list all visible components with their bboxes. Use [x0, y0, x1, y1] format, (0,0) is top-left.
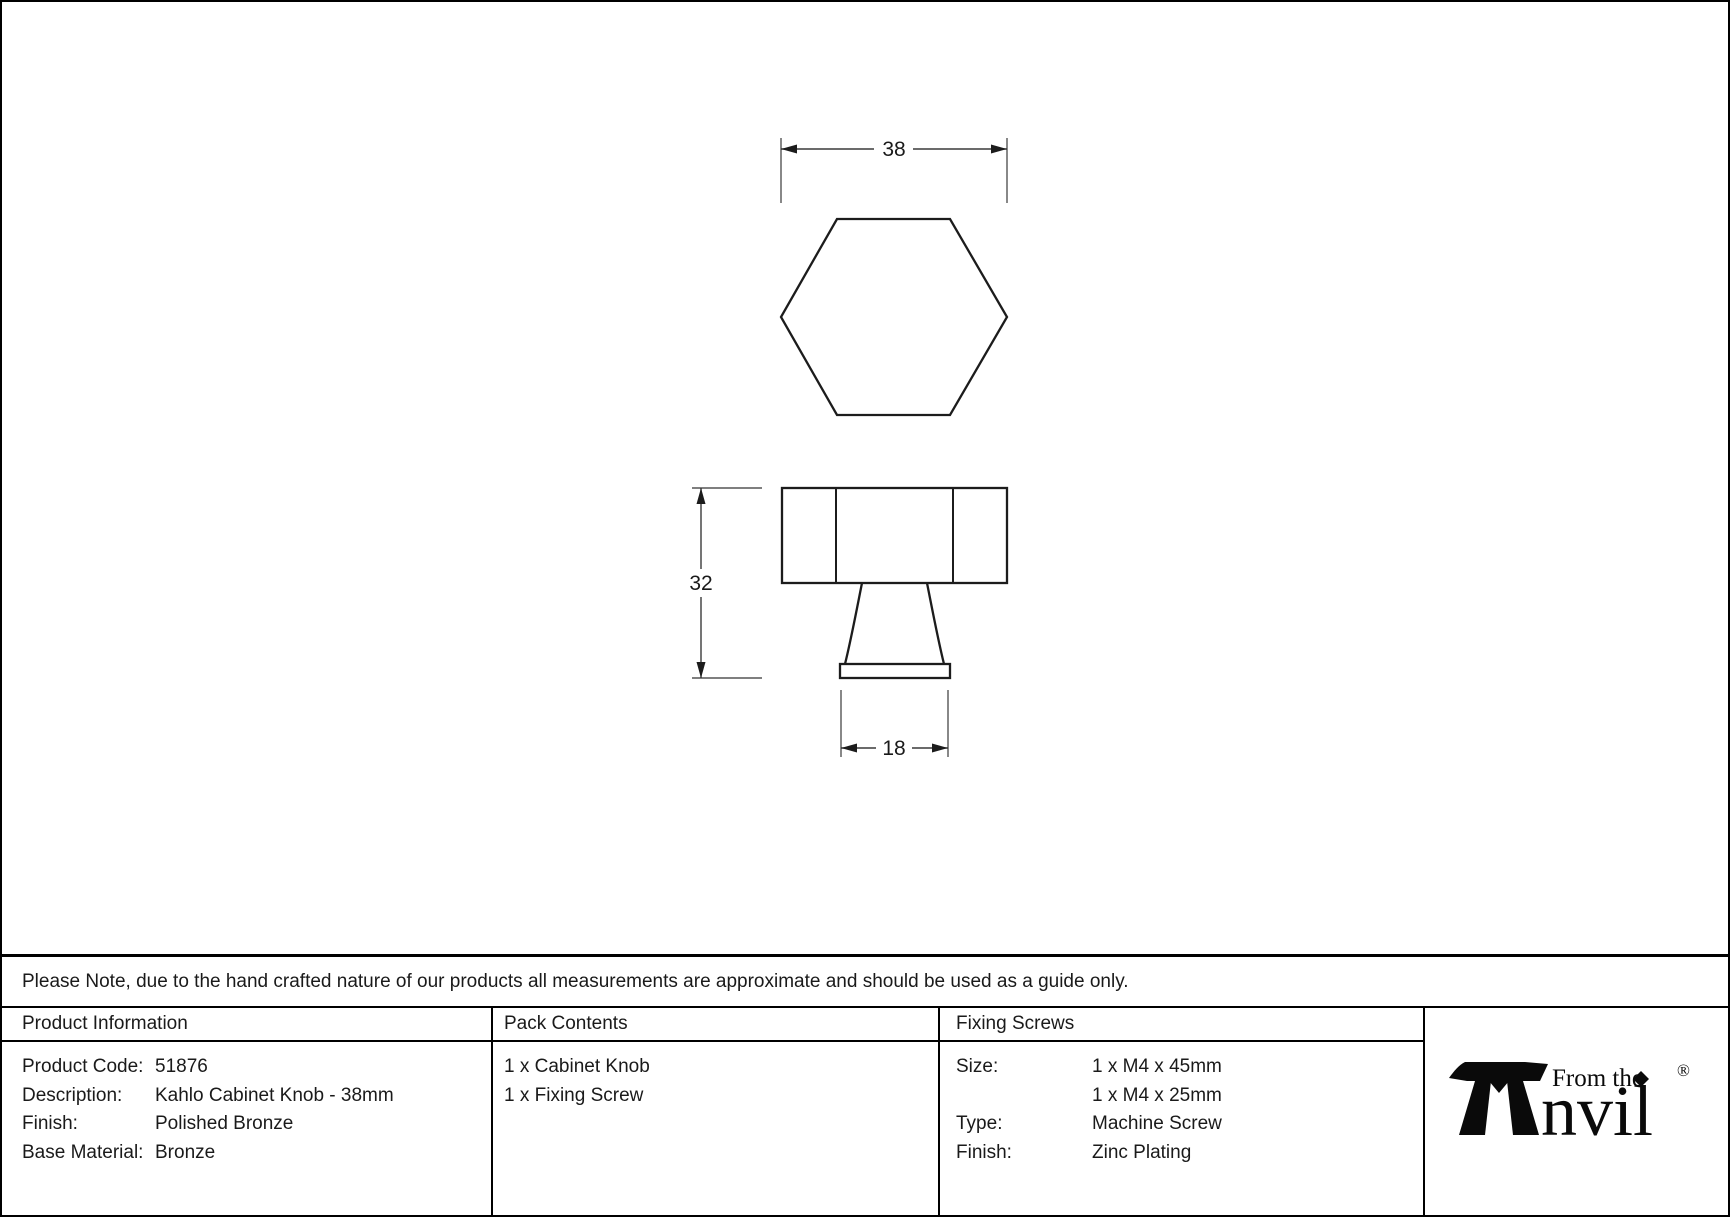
- table-row: Product Code:51876: [22, 1053, 491, 1082]
- row-label: Finish:: [22, 1110, 155, 1139]
- list-item: 1 x Cabinet Knob: [504, 1053, 938, 1082]
- knob-neck-right: [927, 583, 944, 664]
- note-text: Please Note, due to the hand crafted nat…: [22, 971, 1129, 993]
- row-value: Kahlo Cabinet Knob - 38mm: [155, 1085, 394, 1106]
- row-value: 51876: [155, 1056, 208, 1077]
- product-spec-sheet: 38 32: [0, 0, 1730, 1217]
- dim-18-label: 18: [882, 737, 905, 760]
- table-row: Type:Machine Screw: [956, 1110, 1423, 1139]
- knob-head: [782, 488, 1007, 583]
- table-row: Base Material:Bronze: [22, 1139, 491, 1168]
- knob-base: [840, 664, 950, 678]
- list-item: 1 x Fixing Screw: [504, 1082, 938, 1111]
- product-information-header: Product Information: [2, 1008, 491, 1042]
- fixing-screws-header: Fixing Screws: [940, 1008, 1423, 1042]
- registered-mark: ®: [1677, 1061, 1690, 1080]
- row-value: Polished Bronze: [155, 1113, 293, 1134]
- row-value: Machine Screw: [1092, 1113, 1222, 1134]
- row-label: Size:: [956, 1053, 1092, 1082]
- table-row: Finish:Polished Bronze: [22, 1110, 491, 1139]
- spec-table: Product Information Product Code:51876 D…: [2, 1008, 1728, 1215]
- dimension-18: 18: [841, 690, 948, 760]
- knob-neck-left: [845, 583, 862, 664]
- note-bar: Please Note, due to the hand crafted nat…: [2, 954, 1728, 1008]
- row-label: Finish:: [956, 1139, 1092, 1168]
- row-label: Product Code:: [22, 1053, 155, 1082]
- logo-wordmark: nvil: [1541, 1071, 1653, 1151]
- row-value: 1 x M4 x 25mm: [1092, 1085, 1222, 1106]
- pack-contents-header: Pack Contents: [493, 1008, 938, 1042]
- row-value: Bronze: [155, 1142, 215, 1163]
- table-row: Description:Kahlo Cabinet Knob - 38mm: [22, 1082, 491, 1111]
- row-label: Base Material:: [22, 1139, 155, 1168]
- row-label: Type:: [956, 1110, 1092, 1139]
- row-value: 1 x M4 x 45mm: [1092, 1056, 1222, 1077]
- dim-32-label: 32: [689, 572, 712, 595]
- hexagon-top-view: [781, 219, 1007, 415]
- table-row: Finish:Zinc Plating: [956, 1139, 1423, 1168]
- dim-38-label: 38: [882, 138, 905, 161]
- product-information-column: Product Information Product Code:51876 D…: [2, 1008, 493, 1215]
- fixing-screws-column: Fixing Screws Size:1 x M4 x 45mm 1 x M4 …: [940, 1008, 1425, 1215]
- brand-logo-cell: From the nvil ®: [1425, 1008, 1728, 1215]
- row-value: Zinc Plating: [1092, 1142, 1191, 1163]
- knob-side-view: [782, 488, 1007, 678]
- row-label: Description:: [22, 1082, 155, 1111]
- from-the-anvil-logo: From the nvil ®: [1445, 1058, 1695, 1154]
- anvil-icon: [1449, 1062, 1548, 1135]
- dimension-32: 32: [689, 488, 762, 678]
- pack-contents-column: Pack Contents 1 x Cabinet Knob 1 x Fixin…: [493, 1008, 940, 1215]
- table-row: Size:1 x M4 x 45mm: [956, 1053, 1423, 1082]
- dimension-38: 38: [781, 138, 1007, 203]
- technical-drawing: 38 32: [2, 2, 1728, 954]
- table-row: 1 x M4 x 25mm: [956, 1082, 1423, 1111]
